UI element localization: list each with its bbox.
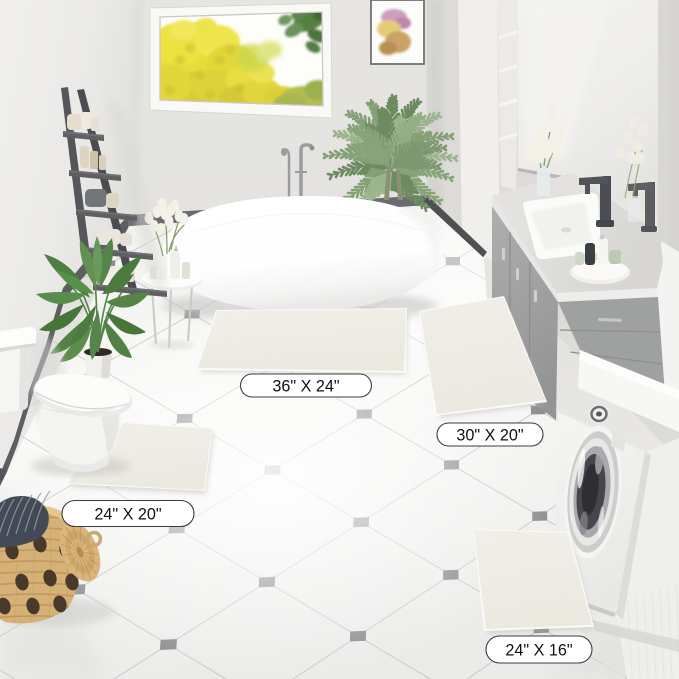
svg-text:30" X 20": 30" X 20" <box>456 426 524 444</box>
svg-text:24" X 20": 24" X 20" <box>94 505 162 523</box>
svg-text:24" X 16": 24" X 16" <box>505 641 573 659</box>
svg-text:36" X 24": 36" X 24" <box>272 377 340 395</box>
